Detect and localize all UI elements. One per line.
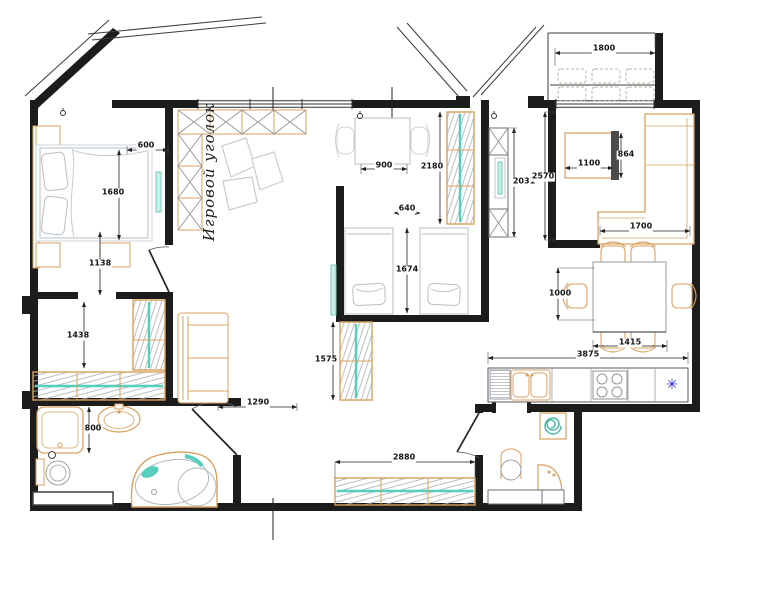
bean-bags: [222, 138, 283, 210]
floor-plan: 6001680113814388009002180640167415751290…: [0, 0, 770, 595]
dim-label-800: 800: [84, 425, 103, 434]
double-bed: [36, 145, 152, 241]
wc-toilet: [501, 449, 521, 480]
bedroom-tv-icon: [156, 172, 161, 212]
play-corner-label: Игровой уголок: [200, 103, 218, 241]
kids-desk: [355, 118, 410, 164]
exterior-lines: [25, 17, 655, 100]
hall-tv-unit: [489, 128, 508, 237]
nightstand-bottom: [36, 243, 60, 267]
floorplan-drawing: [0, 0, 770, 595]
dressing-wardrobe-bottom: [33, 372, 165, 400]
fridge-icon: ✳: [666, 378, 678, 392]
bathroom-sink: [98, 404, 140, 432]
dim-label-1438: 1438: [66, 332, 90, 341]
living-tv-stand: [565, 133, 613, 178]
wc-corner-sink: [538, 465, 562, 490]
dim-label-1290: 1290: [246, 399, 270, 408]
kids-bed-2: [420, 228, 468, 314]
kids-bed-1: [345, 228, 393, 314]
dim-label-600: 600: [137, 142, 156, 151]
bathroom-bench: [33, 492, 113, 505]
dim-label-1700: 1700: [629, 223, 653, 232]
dining-table: [593, 262, 666, 332]
corner-bathtub: [131, 452, 217, 510]
hall-closet-1575: [340, 322, 372, 400]
bedroom-door: [149, 247, 169, 292]
dim-label-1800: 1800: [592, 45, 616, 54]
wc-washing-machine: [540, 413, 566, 439]
wardrobe-2180: [447, 112, 474, 224]
dim-label-2570: 2570: [531, 173, 555, 182]
bathroom-toilet: [36, 452, 70, 486]
dim-label-1000: 1000: [548, 290, 572, 299]
dim-label-1674: 1674: [395, 266, 419, 275]
kids-tv-icon: [331, 265, 336, 315]
dish-drainer: [490, 370, 510, 399]
dim-label-1575: 1575: [314, 356, 338, 365]
bathroom-door: [192, 402, 237, 455]
dim-label-3875: 3875: [576, 351, 600, 360]
dim-label-1680: 1680: [101, 189, 125, 198]
wc-cabinet: [488, 490, 564, 504]
wc-door: [457, 413, 479, 458]
dim-label-640: 640: [398, 205, 417, 214]
kitchen-sink: [511, 370, 550, 400]
dim-label-864: 864: [617, 151, 636, 160]
dim-label-1138: 1138: [88, 260, 112, 269]
dim-label-2880: 2880: [392, 454, 416, 463]
hallway-sofa: [178, 313, 228, 403]
kitchen-stove: [593, 371, 627, 399]
nightstand-top: [36, 126, 60, 146]
dim-label-1100: 1100: [577, 160, 601, 169]
shower-cabin: [37, 407, 83, 453]
dressing-wardrobe-right: [133, 300, 165, 370]
dim-label-2180: 2180: [420, 163, 444, 172]
dim-label-1415: 1415: [618, 339, 642, 348]
dim-label-900: 900: [375, 162, 394, 171]
hallway-wardrobe-2880: [335, 478, 475, 505]
